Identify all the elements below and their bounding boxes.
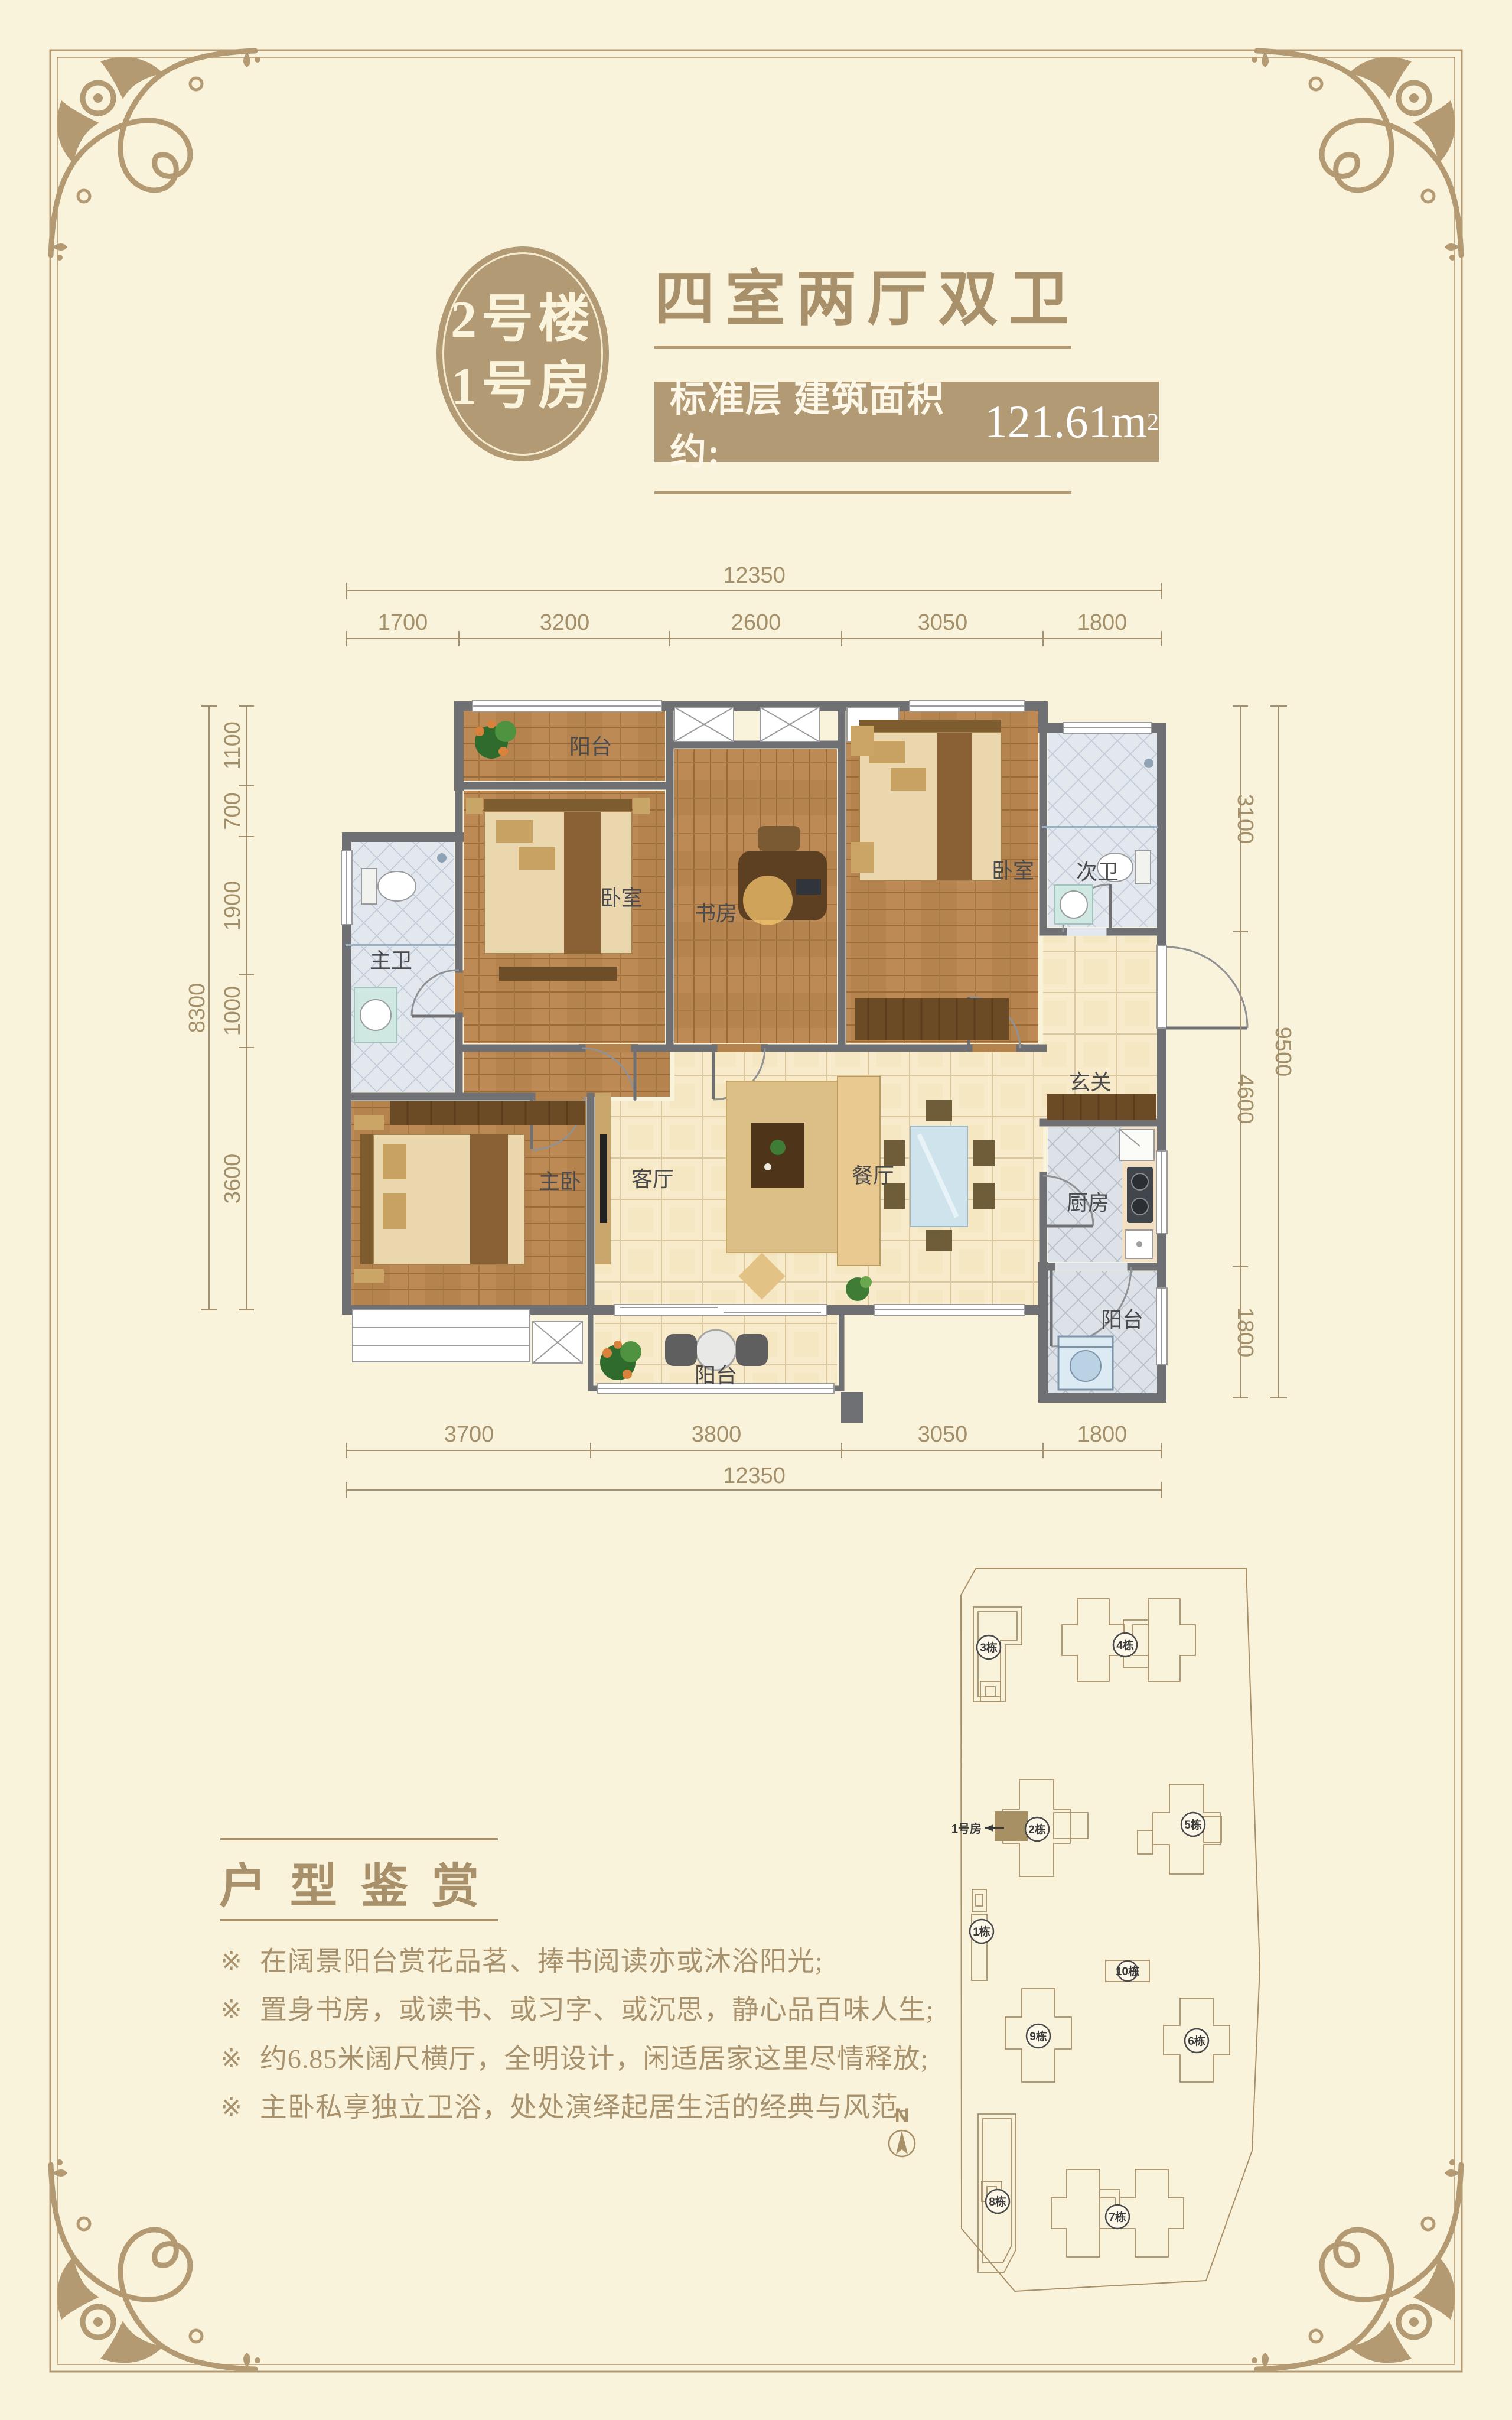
bullet-text: 在阔景阳台赏花品茗、捧书阅读亦或沐浴阳光; — [260, 1947, 823, 1976]
dim-right-1: 3100 — [1233, 794, 1257, 844]
wall-stub — [841, 1392, 863, 1423]
badge-b3: 3栋 — [980, 1641, 998, 1654]
appreciation-title: 户型鉴赏 — [219, 1848, 503, 1917]
appreciation-rule-bottom — [220, 1919, 498, 1921]
badge-b6: 6栋 — [1188, 2034, 1205, 2048]
room-label-bath-second: 次卫 — [1076, 860, 1119, 884]
dim-bottom-2: 3800 — [692, 1422, 742, 1447]
badge-b10: 10栋 — [1116, 1964, 1139, 1978]
room-label-living: 客厅 — [631, 1167, 674, 1191]
dim-bottom-total: 12350 — [723, 1463, 786, 1488]
dim-left-1: 1100 — [220, 721, 245, 770]
bullet-text: 主卧私享独立卫浴，处处演绎起居生活的经典与风范。 — [260, 2093, 926, 2122]
unit-pointer-label: 1号房 — [951, 1821, 982, 1836]
bullet-row: ※ 在阔景阳台赏花品茗、捧书阅读亦或沐浴阳光; — [220, 1947, 964, 1976]
dim-top-2: 3200 — [540, 610, 590, 635]
bullet-marker-icon: ※ — [220, 1947, 242, 1976]
bullet-row: ※ 约6.85米阔尺横厅，全明设计，闲适居家这里尽情释放; — [220, 2045, 964, 2073]
bullet-text: 约6.85米阔尺横厅，全明设计，闲适居家这里尽情释放; — [260, 2045, 928, 2073]
dim-top-total: 12350 — [723, 563, 786, 588]
dim-right-total: 9500 — [1270, 1027, 1295, 1077]
dim-left-2: 700 — [220, 792, 245, 830]
poster-page: 2号楼 1号房 四室两厅双卫 标准层 建筑面积约: 121.61m 2 — [0, 0, 1512, 2420]
area-label: 标准层 建筑面积约: — [670, 369, 981, 475]
room-label-master: 主卧 — [539, 1169, 581, 1193]
dim-left-4: 1000 — [220, 986, 245, 1036]
dim-left-total: 8300 — [185, 983, 210, 1033]
area-value: 121.61m — [985, 395, 1147, 448]
title-divider-top — [654, 346, 1071, 349]
appreciation-rule-top — [220, 1838, 498, 1840]
site-plan: 1号房 3栋 4栋 2栋 5栋 1栋 10栋 9栋 6栋 8栋 7栋 N — [886, 1536, 1429, 2387]
appreciation-bullets: ※ 在阔景阳台赏花品茗、捧书阅读亦或沐浴阳光; ※ 置身书房，或读书、或习字、或… — [220, 1947, 964, 2142]
badge-b8: 8栋 — [989, 2195, 1006, 2208]
dim-top-5: 1800 — [1077, 610, 1128, 635]
building-5 — [1138, 1784, 1221, 1874]
page-title: 四室两厅双卫 — [654, 251, 1080, 337]
room-label-kitchen: 厨房 — [1067, 1191, 1109, 1215]
dim-bottom-1: 3700 — [444, 1422, 494, 1447]
unit-badge: 2号楼 1号房 — [436, 246, 609, 461]
dim-bottom-4: 1800 — [1077, 1422, 1128, 1447]
dim-left-3: 1900 — [220, 881, 245, 931]
dim-left-5: 3600 — [220, 1154, 245, 1204]
room-label-bedroom-b: 卧室 — [992, 858, 1034, 883]
badge-b2: 2栋 — [1028, 1823, 1046, 1836]
dim-bottom-3: 3050 — [918, 1422, 968, 1447]
room-label-balcony-service: 阳台 — [1101, 1307, 1143, 1332]
title-divider-bottom — [654, 491, 1071, 494]
room-label-balcony-bottom: 阳台 — [695, 1363, 737, 1387]
bullet-row: ※ 置身书房，或读书、或习字、或沉思，静心品百味人生; — [220, 1996, 964, 2024]
bullet-marker-icon: ※ — [220, 2093, 242, 2122]
badge-room: 1号房 — [451, 354, 595, 421]
building-badges: 3栋 4栋 2栋 5栋 1栋 10栋 9栋 6栋 8栋 7栋 — [970, 1633, 1208, 2229]
bullet-row: ※ 主卧私享独立卫浴，处处演绎起居生活的经典与风范。 — [220, 2093, 964, 2122]
room-label-study: 书房 — [695, 901, 737, 925]
bullet-marker-icon: ※ — [220, 2045, 242, 2073]
badge-b5: 5栋 — [1184, 1818, 1202, 1832]
highlighted-unit — [995, 1811, 1028, 1841]
floor-plan: 阳台 卧室 书房 卧室 次卫 主卫 主卧 客厅 餐厅 厨房 玄关 阳台 阳台 1 — [165, 555, 1311, 1512]
room-label-balcony-top: 阳台 — [569, 734, 612, 759]
badge-b9: 9栋 — [1029, 2029, 1047, 2043]
dim-top-1: 1700 — [378, 610, 428, 635]
dim-right-3: 1800 — [1233, 1307, 1257, 1358]
bullet-text: 置身书房，或读书、或习字、或沉思，静心品百味人生; — [260, 1996, 934, 2024]
room-label-foyer: 玄关 — [1069, 1070, 1112, 1094]
dim-top-3: 2600 — [731, 610, 781, 635]
dim-top-4: 3050 — [918, 610, 968, 635]
badge-building: 2号楼 — [451, 287, 595, 354]
bullet-marker-icon: ※ — [220, 1996, 242, 2024]
badge-b7: 7栋 — [1109, 2210, 1126, 2224]
badge-b1: 1栋 — [973, 1925, 990, 1938]
badge-b4: 4栋 — [1116, 1638, 1134, 1652]
dim-right-2: 4600 — [1233, 1074, 1257, 1124]
room-label-bedroom-a: 卧室 — [600, 886, 643, 910]
room-label-bath-master: 主卫 — [370, 948, 412, 972]
room-label-dining: 餐厅 — [852, 1163, 894, 1188]
area-banner: 标准层 建筑面积约: 121.61m 2 — [654, 382, 1159, 462]
